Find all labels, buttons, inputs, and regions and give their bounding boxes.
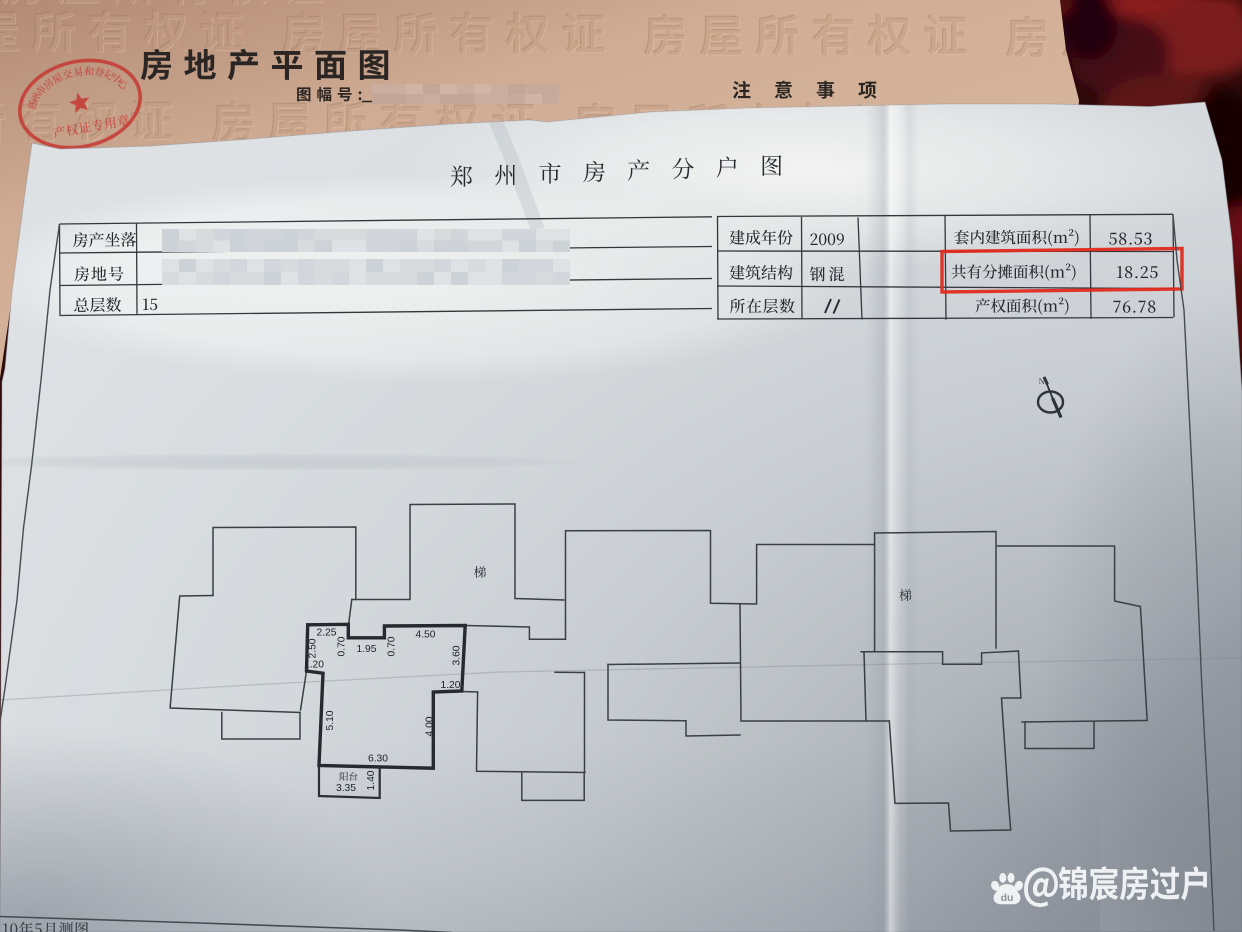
- svg-text:0.70: 0.70: [337, 636, 348, 656]
- svg-text:4.00: 4.00: [425, 716, 436, 736]
- svg-text:3.60: 3.60: [452, 645, 463, 665]
- svg-text:1.95: 1.95: [356, 644, 376, 655]
- svg-text:1.40: 1.40: [366, 770, 377, 790]
- svg-text:2.50: 2.50: [308, 638, 319, 658]
- svg-text:6.30: 6.30: [368, 754, 388, 765]
- svg-text:3.35: 3.35: [336, 783, 356, 794]
- svg-text:2.25: 2.25: [316, 628, 336, 639]
- svg-text:1.20: 1.20: [440, 680, 460, 691]
- svg-text:du: du: [1001, 892, 1014, 904]
- svg-text:1.20: 1.20: [304, 660, 324, 671]
- svg-text:0.70: 0.70: [387, 636, 398, 656]
- svg-text:5.10: 5.10: [325, 710, 336, 730]
- svg-text:4.50: 4.50: [415, 630, 435, 641]
